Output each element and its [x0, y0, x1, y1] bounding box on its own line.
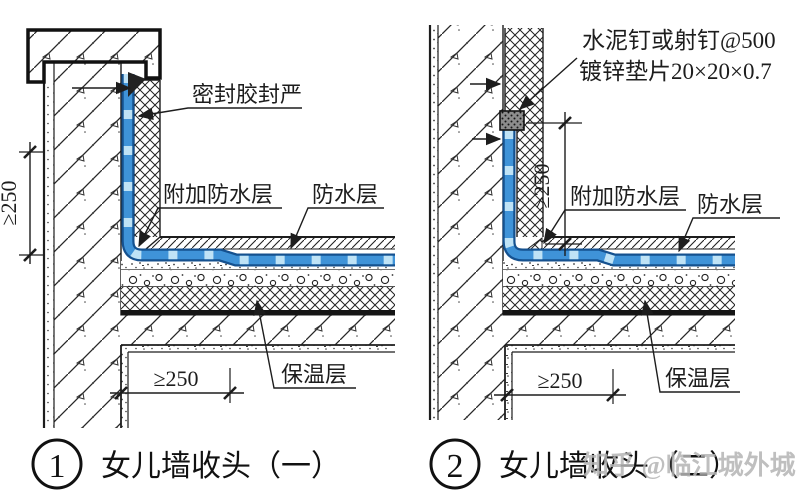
label-nail: 水泥钉或射钉@500: [582, 28, 776, 53]
wall-plaster: [44, 82, 54, 428]
roof-protective-layer: [146, 237, 395, 249]
washer-fastener: [500, 111, 524, 130]
insulation-layer-roof: [503, 287, 735, 310]
detail-number-left: 1: [49, 448, 66, 485]
label-insulation-left: 保温层: [281, 362, 347, 387]
label-waterproof-right: 防水层: [697, 192, 763, 217]
dim-vertical-left-text: ≥250: [0, 180, 21, 225]
label-extra-waterproof-right: 附加防水层: [570, 184, 680, 209]
title-left: 1 女儿墙收头（一）: [33, 440, 341, 488]
ceiling-plaster: [121, 345, 395, 352]
lower-wall-plaster: [505, 345, 512, 420]
label-insulation-right: 保温层: [665, 366, 731, 391]
label-extra-waterproof-left: 附加防水层: [163, 182, 273, 207]
ceiling-plaster: [505, 345, 735, 352]
construction-detail-sheet: ≥250 ≥250 密封胶封严 附加防水层 防水层 保温层 1 女儿墙收头（一）: [0, 0, 801, 500]
slab-top-band: [503, 310, 735, 316]
detail-number-right: 2: [447, 448, 464, 485]
detail-left: ≥250 ≥250 密封胶封严 附加防水层 防水层 保温层 1 女儿墙收头（一）: [0, 30, 395, 488]
label-washer: 镀锌垫片20×20×0.7: [579, 59, 772, 84]
aggregate-layer: [503, 270, 735, 287]
slab-top-band: [121, 310, 395, 316]
dim-horizontal-right-text: ≥250: [537, 368, 582, 393]
detail-right: ≥250 ≥250 水泥钉或射钉@500 镀锌垫片20×20×0.7 附加防水层…: [430, 25, 780, 488]
label-sealant: 密封胶封严: [192, 82, 302, 107]
leader-sealant: [139, 108, 302, 116]
dim-vertical-left: ≥250: [0, 142, 45, 264]
detail-drawing-canvas: ≥250 ≥250 密封胶封严 附加防水层 防水层 保温层 1 女儿墙收头（一）: [0, 0, 801, 500]
dim-vertical-right-text: ≥250: [529, 163, 554, 208]
dim-horizontal-left: ≥250: [110, 366, 244, 403]
roof-protective-layer: [534, 237, 735, 249]
label-waterproof-left: 防水层: [312, 182, 378, 207]
lower-wall-plaster: [121, 345, 128, 428]
wall-plaster: [430, 25, 438, 420]
detail-title-left: 女儿墙收头（一）: [101, 450, 341, 483]
dim-horizontal-right: ≥250: [494, 368, 626, 404]
aggregate-layer: [121, 270, 395, 287]
watermark: 知乎 @临江城外城: [583, 450, 796, 480]
dim-horizontal-left-text: ≥250: [153, 366, 198, 391]
insulation-strip-wall: [134, 80, 160, 237]
